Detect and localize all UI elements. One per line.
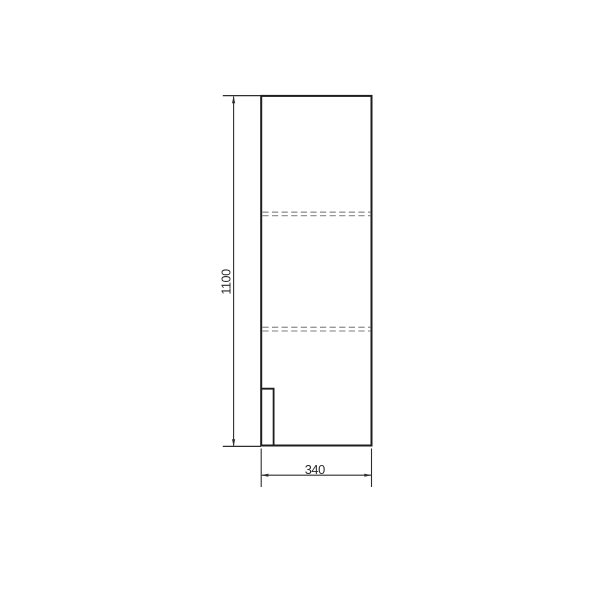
svg-text:340: 340	[305, 462, 325, 477]
svg-text:1100: 1100	[220, 269, 234, 295]
